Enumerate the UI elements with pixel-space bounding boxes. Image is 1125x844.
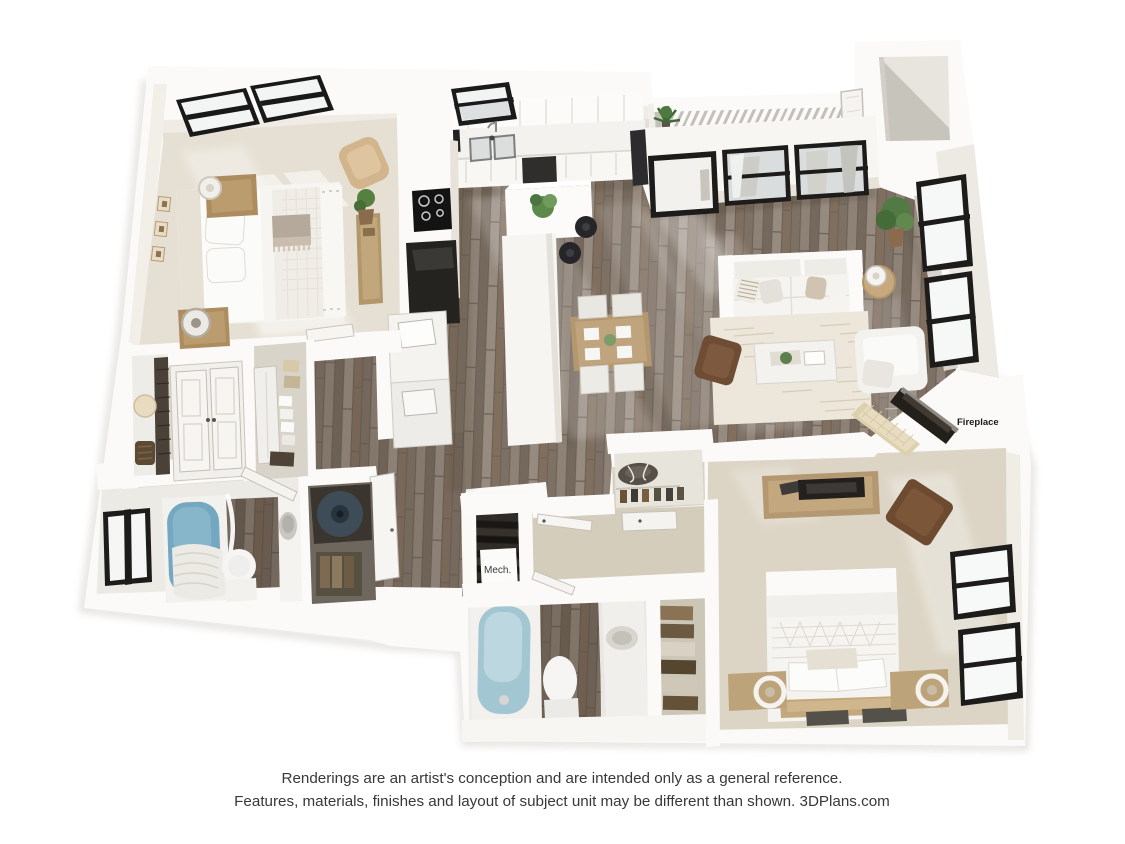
svg-text:Features, materials, finishes: Features, materials, finishes and layout… [234,793,890,810]
svg-text:Renderings are an artist's con: Renderings are an artist's conception an… [282,770,843,787]
svg-text:Fireplace: Fireplace [957,417,999,428]
svg-text:Mech.: Mech. [484,565,511,576]
